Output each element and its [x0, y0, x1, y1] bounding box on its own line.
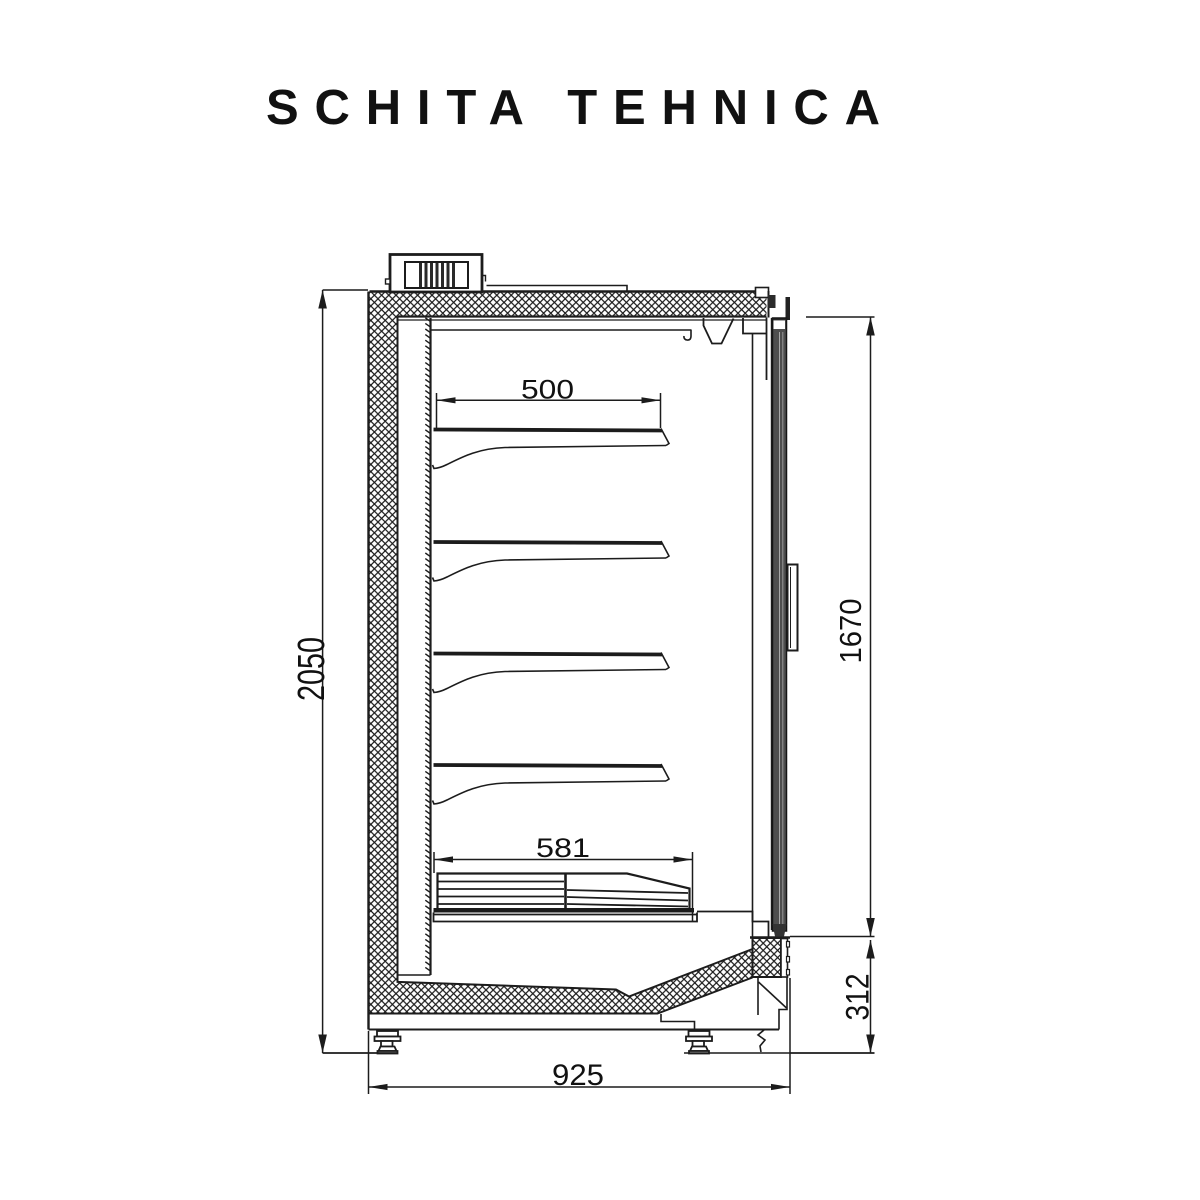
- svg-text:500: 500: [521, 375, 574, 405]
- svg-text:581: 581: [536, 833, 590, 863]
- svg-text:312: 312: [840, 974, 876, 1021]
- svg-text:925: 925: [552, 1059, 604, 1092]
- svg-text:SCHITA TEHNICA: SCHITA TEHNICA: [266, 81, 880, 135]
- svg-text:2050: 2050: [291, 637, 333, 701]
- svg-text:1670: 1670: [833, 599, 868, 664]
